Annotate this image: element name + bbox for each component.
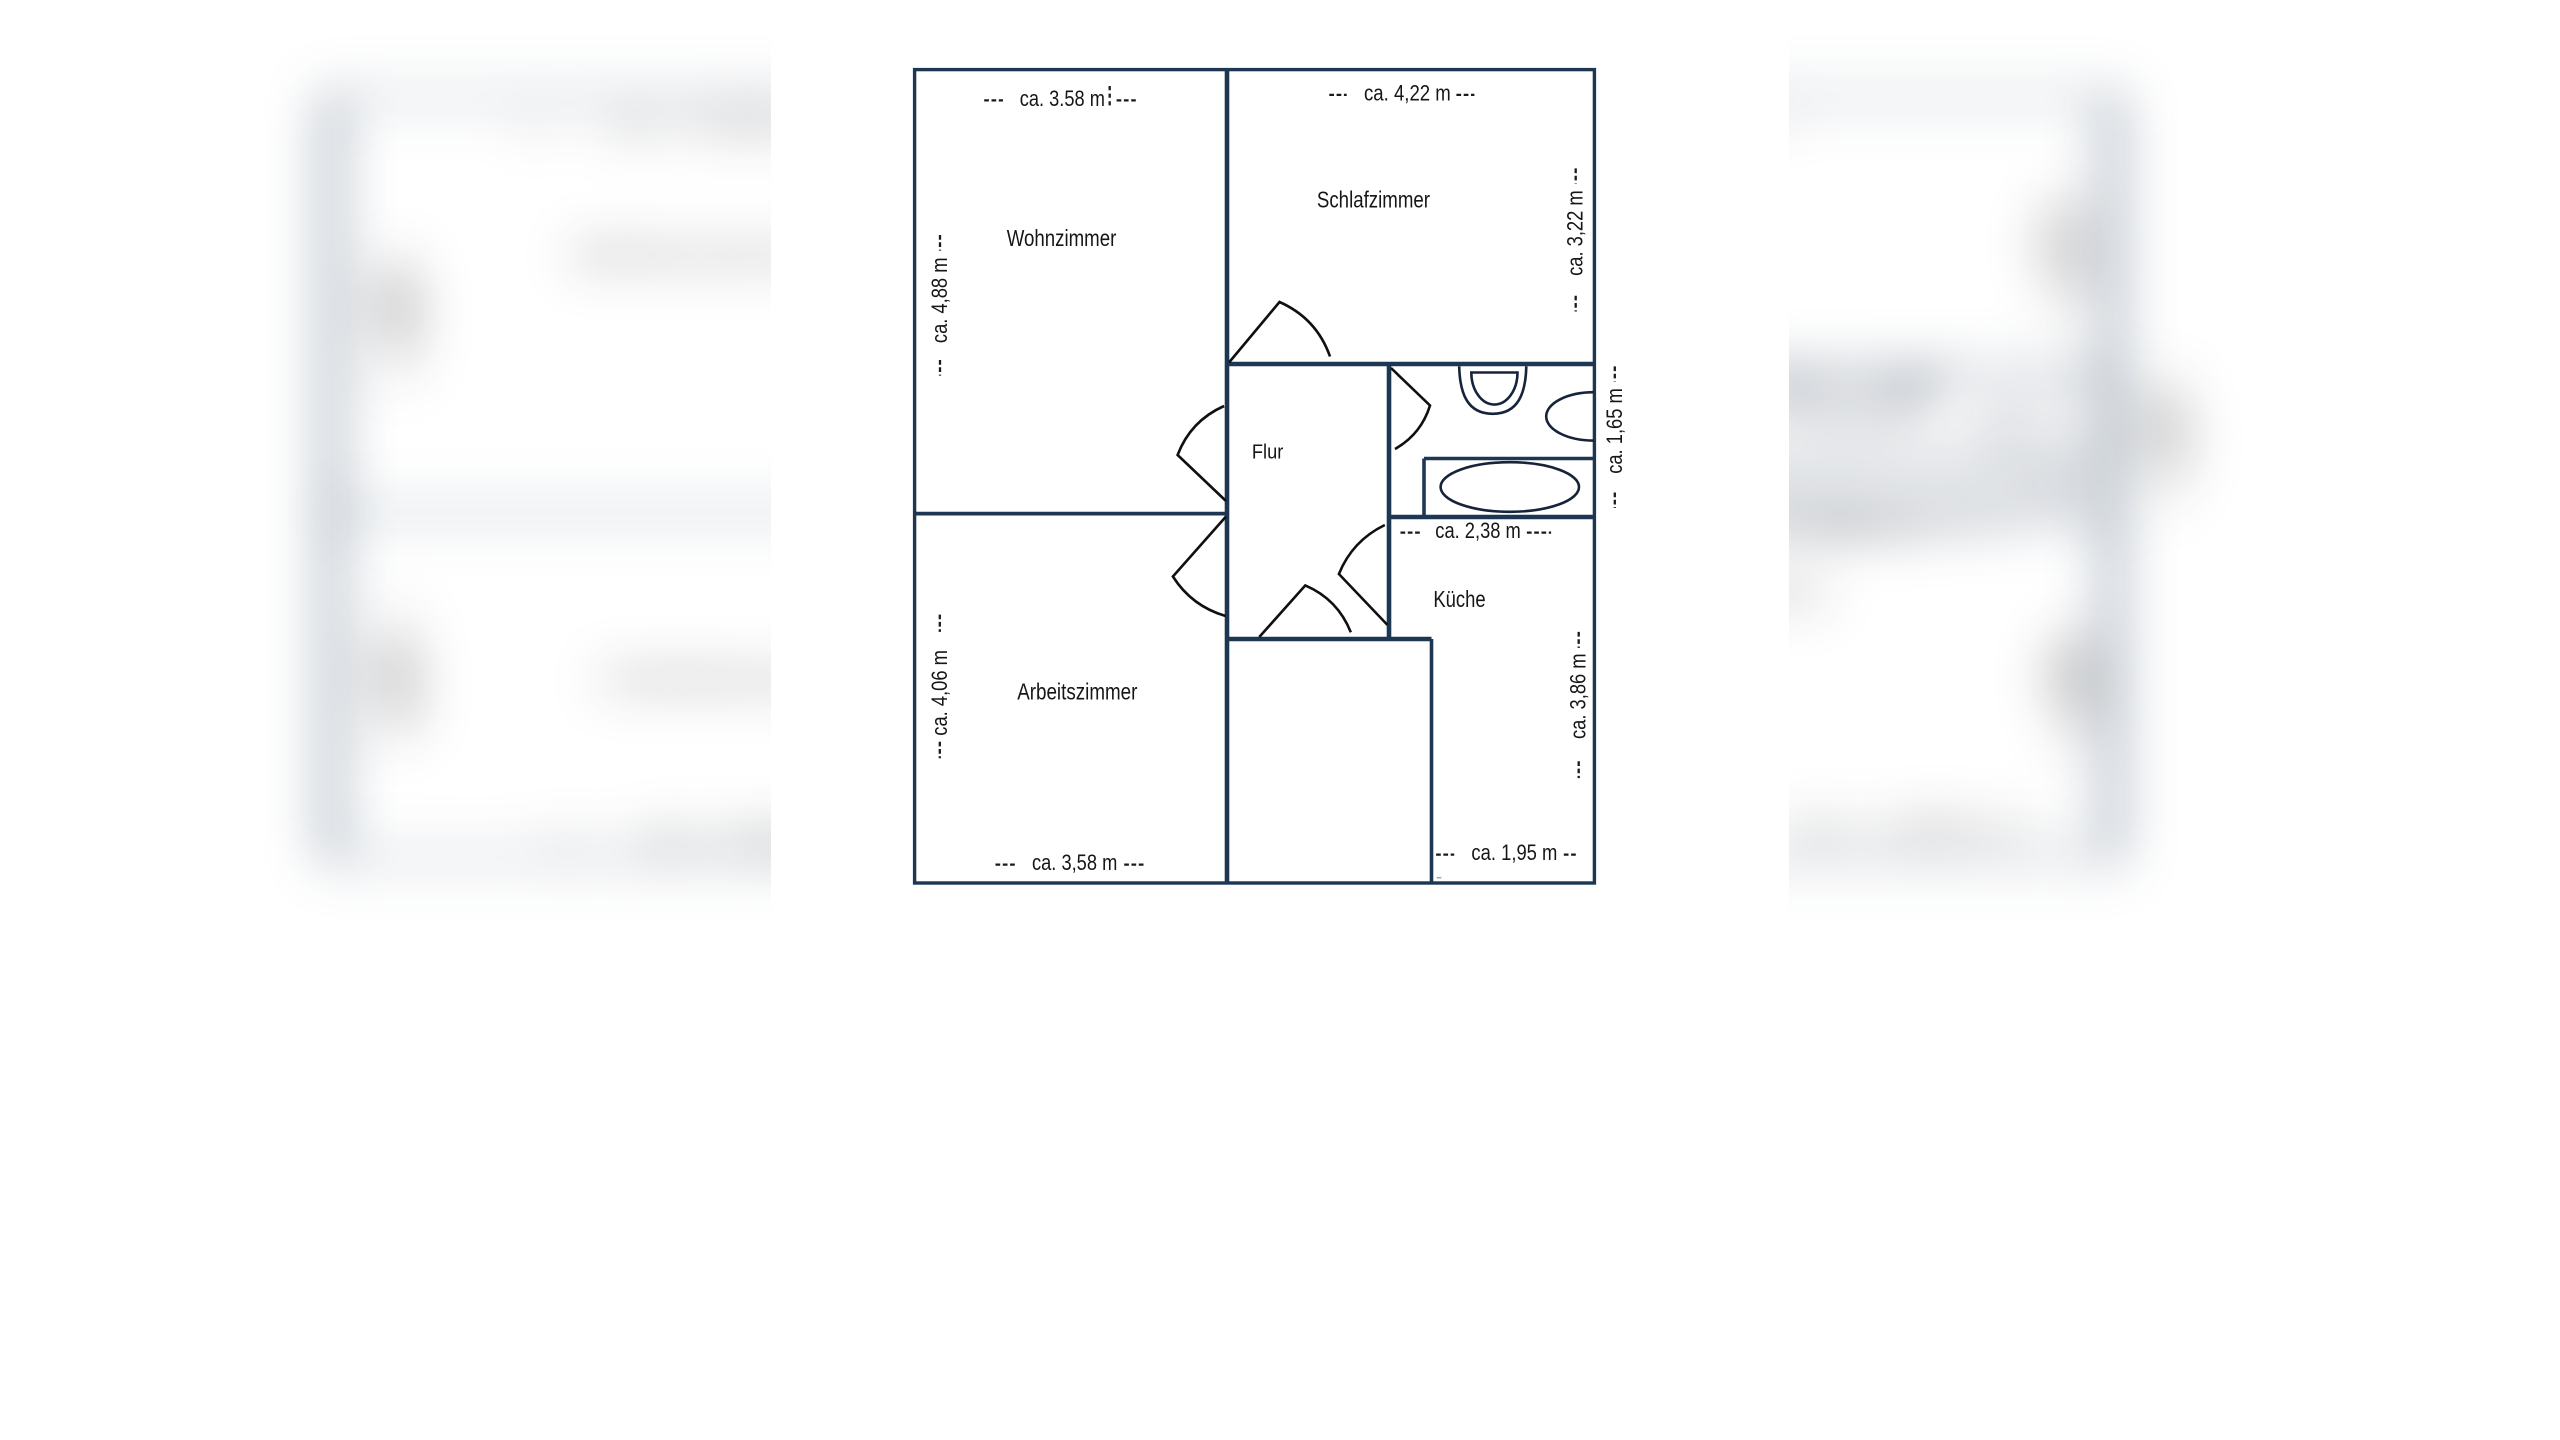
svg-text:ca. 4,06 m: ca. 4,06 m (927, 650, 952, 736)
svg-text:Küche: Küche (1433, 586, 1485, 612)
svg-text:Arbeitszimmer: Arbeitszimmer (1017, 679, 1137, 705)
svg-text:Wohnzimmer: Wohnzimmer (1007, 225, 1117, 251)
svg-text:ca. 1,95 m: ca. 1,95 m (1471, 840, 1557, 865)
svg-text:ca. 3.58 m: ca. 3.58 m (1020, 86, 1105, 111)
svg-text:ca. 4,88 m: ca. 4,88 m (927, 258, 952, 344)
svg-text:Schlafzimmer: Schlafzimmer (1317, 187, 1430, 213)
svg-text:ca. 3,22 m: ca. 3,22 m (1563, 190, 1588, 276)
svg-text:ca. 1,65 m: ca. 1,65 m (1602, 388, 1627, 474)
svg-text:ca. 3,58 m: ca. 3,58 m (1032, 850, 1117, 875)
svg-text:ca. 4,22 m: ca. 4,22 m (1364, 80, 1451, 105)
svg-text:ca. 2,38 m: ca. 2,38 m (1435, 518, 1521, 543)
svg-text:ca. 3,86 m: ca. 3,86 m (1566, 653, 1591, 739)
svg-text:Flur: Flur (1252, 441, 1284, 464)
